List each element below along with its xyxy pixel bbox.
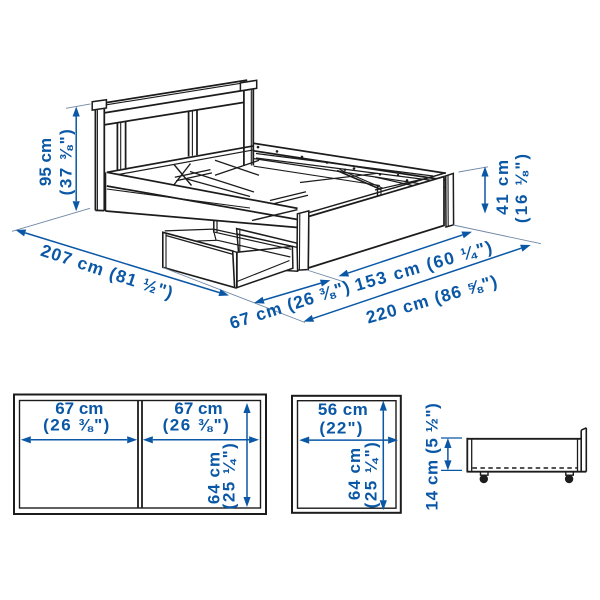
svg-text:(25 ¼"): (25 ¼"): [361, 441, 380, 509]
svg-text:14 cm (5 ½"): 14 cm (5 ½"): [422, 403, 441, 511]
svg-text:(37 ⅜"): (37 ⅜"): [56, 128, 75, 196]
svg-text:(22"): (22"): [319, 418, 363, 437]
svg-text:207 cm (81 ½"): 207 cm (81 ½"): [38, 240, 176, 303]
svg-text:(25 ¼"): (25 ¼"): [219, 442, 238, 510]
svg-text:41 cm: 41 cm: [493, 158, 512, 215]
svg-text:(26 ⅜"): (26 ⅜"): [163, 415, 231, 434]
svg-text:(26 ⅜"): (26 ⅜"): [43, 415, 111, 434]
svg-text:95 cm: 95 cm: [36, 138, 55, 186]
svg-text:(16 ⅛"): (16 ⅛"): [512, 152, 531, 223]
svg-text:56 cm: 56 cm: [318, 400, 368, 419]
